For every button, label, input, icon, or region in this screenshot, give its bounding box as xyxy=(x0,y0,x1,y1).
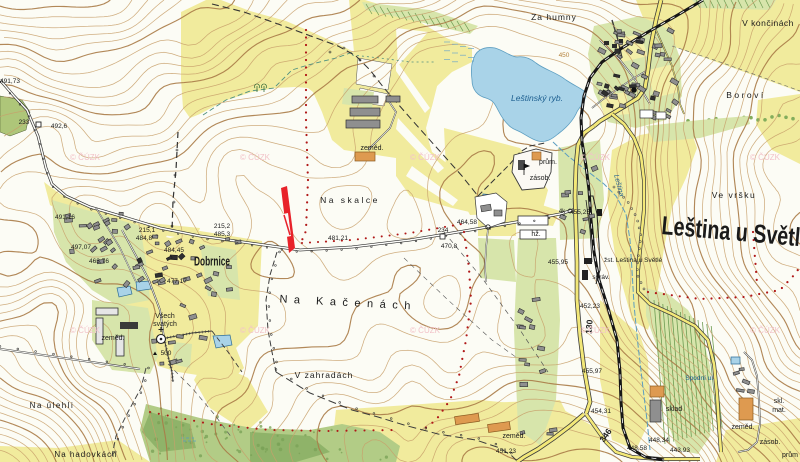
svg-text:448,58: 448,58 xyxy=(627,445,647,452)
svg-text:zeměd.: zeměd. xyxy=(361,145,384,152)
svg-text:Dobrnice: Dobrnice xyxy=(194,255,230,269)
svg-text:zeměd.: zeměd. xyxy=(732,424,755,431)
svg-text:zeměd.: zeměd. xyxy=(102,335,125,342)
svg-text:prům: prům xyxy=(782,451,798,459)
svg-text:497,07: 497,07 xyxy=(71,244,91,251)
svg-text:464,58: 464,58 xyxy=(457,219,477,226)
svg-text:žst. Leština u Světlé: žst. Leština u Světlé xyxy=(604,257,663,264)
svg-text:455,25: 455,25 xyxy=(570,209,590,216)
svg-text:450: 450 xyxy=(559,52,570,59)
svg-text:Spodní ul.: Spodní ul. xyxy=(685,375,714,382)
svg-text:Na úlehli: Na úlehli xyxy=(30,401,75,410)
svg-text:500: 500 xyxy=(161,350,172,357)
svg-text:skl.: skl. xyxy=(774,398,785,405)
svg-text:© ČÚZK: © ČÚZK xyxy=(750,153,781,162)
svg-text:234: 234 xyxy=(438,227,449,234)
svg-text:Na hadovkách: Na hadovkách xyxy=(54,450,117,459)
svg-text:484,8: 484,8 xyxy=(136,235,153,242)
svg-text:452,23: 452,23 xyxy=(580,303,600,310)
svg-text:Všech: Všech xyxy=(155,313,175,320)
svg-text:485,3: 485,3 xyxy=(214,231,231,238)
svg-text:470,8: 470,8 xyxy=(441,243,458,250)
svg-text:492,6: 492,6 xyxy=(51,123,68,130)
svg-text:Za humny: Za humny xyxy=(531,12,577,22)
svg-text:454,31: 454,31 xyxy=(591,408,611,415)
svg-text:prům.: prům. xyxy=(539,158,557,166)
svg-text:451,23: 451,23 xyxy=(496,448,516,455)
svg-text:© ČÚZK: © ČÚZK xyxy=(240,326,271,335)
svg-text:Boroví: Boroví xyxy=(726,90,766,100)
svg-text:správ.: správ. xyxy=(592,274,609,281)
svg-text:Ve vršku: Ve vršku xyxy=(712,190,757,200)
svg-text:484,45: 484,45 xyxy=(164,247,184,254)
svg-text:zeměd.: zeměd. xyxy=(503,433,526,440)
svg-text:© ČÚZK: © ČÚZK xyxy=(70,153,101,162)
svg-text:zásob.: zásob. xyxy=(760,439,781,446)
svg-text:481,21: 481,21 xyxy=(328,235,348,242)
svg-text:4k: 4k xyxy=(559,209,566,215)
svg-text:zásob.: zásob. xyxy=(530,175,551,182)
svg-text:V zahradách: V zahradách xyxy=(295,370,354,380)
svg-text:Na skalce: Na skalce xyxy=(320,195,380,205)
svg-text:© ČÚZK: © ČÚZK xyxy=(580,153,611,162)
svg-text:215,1: 215,1 xyxy=(139,227,156,234)
svg-text:463,76: 463,76 xyxy=(89,258,109,265)
svg-text:491,16: 491,16 xyxy=(55,214,75,221)
svg-text:sklad: sklad xyxy=(666,406,682,413)
svg-text:© ČÚZK: © ČÚZK xyxy=(410,153,441,162)
svg-text:491,73: 491,73 xyxy=(0,78,20,85)
svg-text:Leštinský ryb.: Leštinský ryb. xyxy=(511,93,563,103)
svg-text:233: 233 xyxy=(19,119,30,126)
svg-text:455,95: 455,95 xyxy=(548,259,568,266)
svg-text:mat.: mat. xyxy=(772,407,786,414)
svg-text:215,2: 215,2 xyxy=(214,223,231,230)
svg-text:448,34: 448,34 xyxy=(649,437,669,444)
svg-text:© ČÚZK: © ČÚZK xyxy=(410,326,441,335)
svg-text:© ČÚZK: © ČÚZK xyxy=(580,326,611,335)
svg-text:© ČÚZK: © ČÚZK xyxy=(70,326,101,335)
svg-text:© ČÚZK: © ČÚZK xyxy=(240,153,271,162)
svg-text:443,93: 443,93 xyxy=(670,447,690,454)
svg-text:477,17: 477,17 xyxy=(167,278,187,285)
svg-text:455,97: 455,97 xyxy=(582,368,602,375)
svg-text:V končinách: V končinách xyxy=(742,18,794,28)
svg-text:hž.: hž. xyxy=(531,231,540,238)
svg-text:svatých: svatých xyxy=(153,321,177,328)
svg-text:© ČÚZK: © ČÚZK xyxy=(750,326,781,335)
